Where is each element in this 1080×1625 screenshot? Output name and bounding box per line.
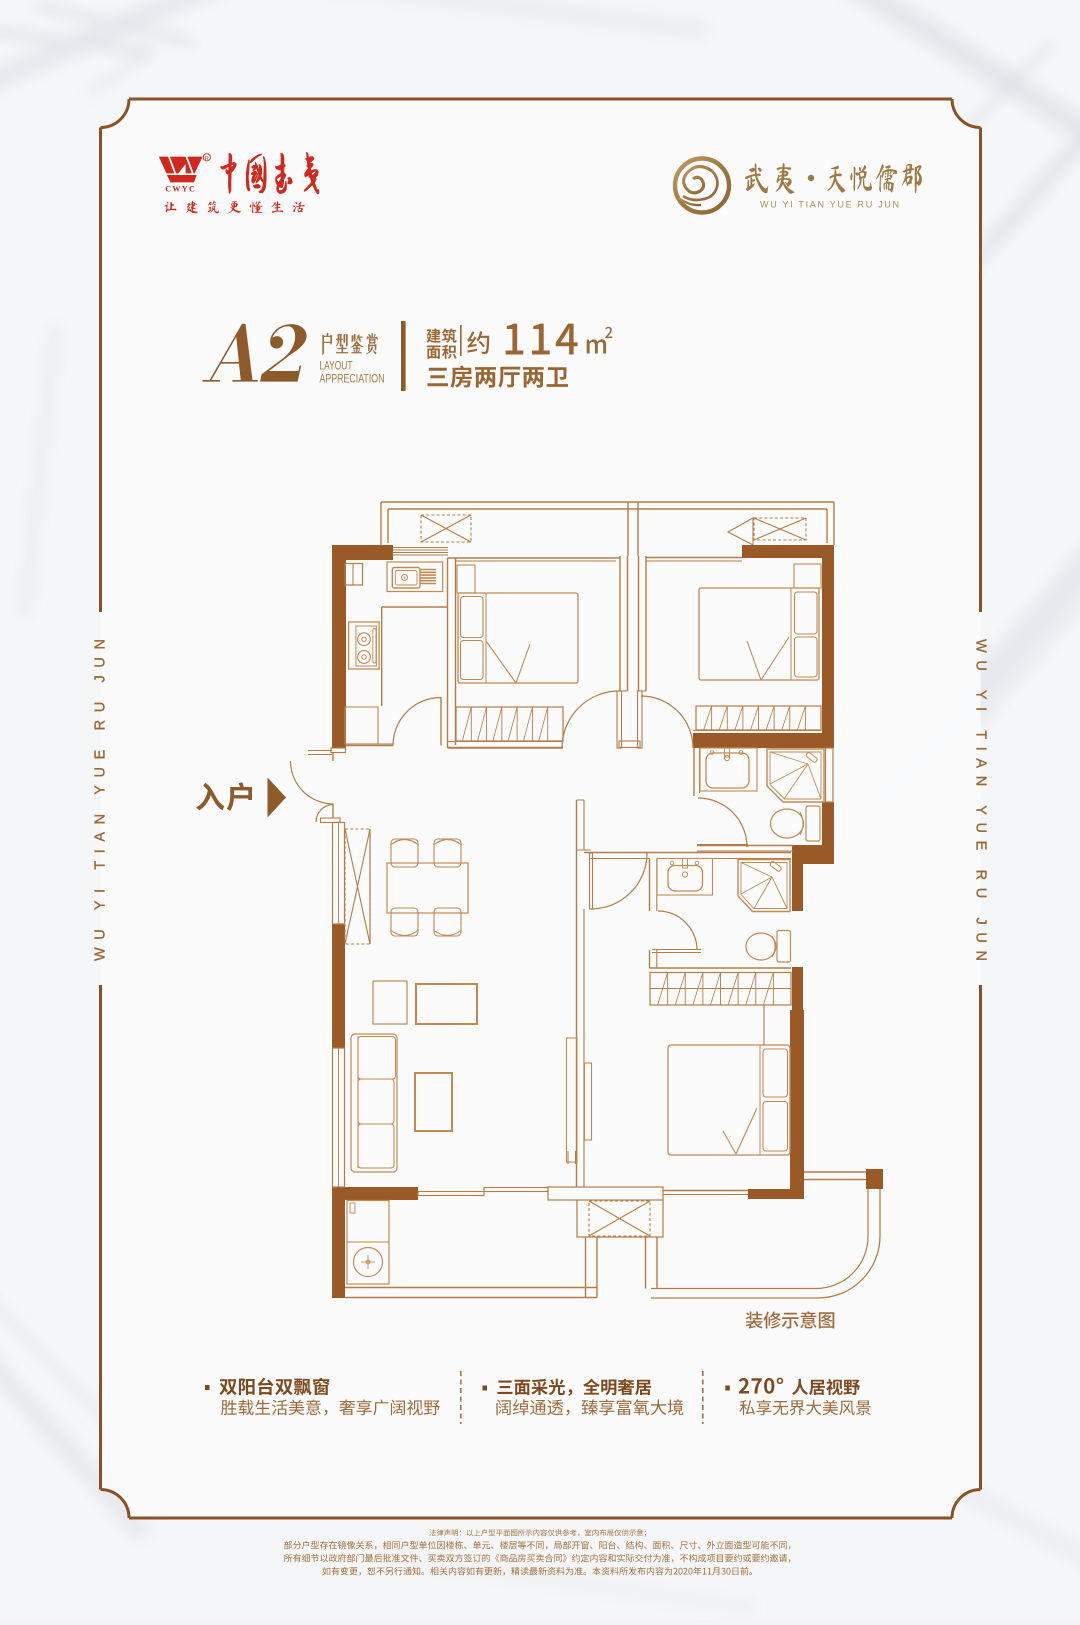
svg-text:CWYC: CWYC bbox=[165, 185, 196, 194]
svg-text:APPRECIATION: APPRECIATION bbox=[320, 372, 385, 386]
svg-text:LAYOUT: LAYOUT bbox=[320, 359, 353, 373]
svg-text:R: R bbox=[205, 156, 209, 162]
